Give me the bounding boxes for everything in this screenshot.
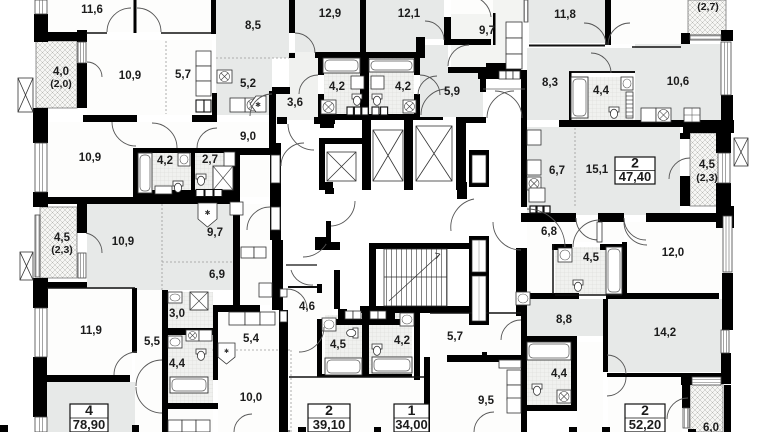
svg-text:4,4: 4,4	[551, 368, 568, 380]
svg-text:4,4: 4,4	[169, 358, 186, 370]
svg-text:10,9: 10,9	[79, 152, 101, 164]
svg-text:12,9: 12,9	[319, 8, 341, 20]
svg-text:9,0: 9,0	[240, 131, 256, 143]
svg-text:4,5: 4,5	[699, 159, 716, 171]
svg-text:47,40: 47,40	[619, 169, 652, 184]
svg-text:11,9: 11,9	[80, 325, 102, 337]
svg-text:2: 2	[641, 402, 649, 418]
svg-text:4,6: 4,6	[299, 301, 315, 313]
svg-text:39,10: 39,10	[313, 417, 346, 432]
svg-text:✱: ✱	[224, 348, 229, 355]
svg-text:5,9: 5,9	[444, 86, 460, 98]
svg-text:11,6: 11,6	[81, 4, 103, 16]
svg-text:4,2: 4,2	[329, 81, 345, 93]
svg-text:(2,3): (2,3)	[51, 244, 73, 256]
svg-text:(2,7): (2,7)	[697, 1, 719, 13]
svg-text:4,2: 4,2	[394, 335, 410, 347]
svg-text:✱: ✱	[205, 209, 211, 217]
svg-text:5,2: 5,2	[240, 78, 256, 90]
svg-text:(2,0): (2,0)	[50, 78, 72, 90]
svg-text:5,7: 5,7	[447, 331, 463, 343]
svg-text:12,1: 12,1	[398, 8, 421, 20]
svg-text:52,20: 52,20	[629, 417, 662, 432]
svg-text:5,4: 5,4	[243, 333, 260, 345]
svg-text:2: 2	[325, 402, 333, 418]
svg-text:12,0: 12,0	[662, 247, 684, 259]
svg-text:5,5: 5,5	[144, 336, 161, 348]
svg-text:9,5: 9,5	[478, 395, 495, 407]
svg-text:4: 4	[85, 402, 93, 418]
svg-text:10,9: 10,9	[112, 236, 134, 248]
svg-text:4,2: 4,2	[395, 81, 411, 93]
svg-text:5,7: 5,7	[175, 69, 191, 81]
svg-text:2,7: 2,7	[202, 154, 218, 166]
svg-text:4,5: 4,5	[583, 252, 600, 264]
svg-text:4,4: 4,4	[593, 85, 610, 97]
svg-text:6,9: 6,9	[209, 269, 225, 281]
svg-text:10,9: 10,9	[119, 70, 141, 82]
svg-text:78,90: 78,90	[73, 417, 106, 432]
svg-text:9,7: 9,7	[479, 25, 495, 37]
svg-text:✱: ✱	[255, 101, 261, 109]
svg-text:4,2: 4,2	[157, 155, 173, 167]
svg-text:34,00: 34,00	[395, 417, 428, 432]
svg-text:9,7: 9,7	[207, 227, 223, 239]
svg-text:11,8: 11,8	[554, 9, 576, 21]
svg-text:6,7: 6,7	[549, 165, 565, 177]
svg-text:6,8: 6,8	[541, 226, 558, 238]
svg-text:8,3: 8,3	[542, 77, 558, 89]
svg-text:14,2: 14,2	[654, 327, 676, 339]
svg-text:8,8: 8,8	[556, 314, 573, 326]
svg-text:10,6: 10,6	[667, 76, 689, 88]
svg-text:4,5: 4,5	[54, 232, 71, 244]
svg-text:3,6: 3,6	[287, 97, 303, 109]
svg-text:6,0: 6,0	[703, 422, 719, 432]
svg-text:(2,3): (2,3)	[696, 172, 718, 184]
svg-text:4,5: 4,5	[330, 339, 347, 351]
svg-text:8,5: 8,5	[245, 20, 262, 32]
svg-text:3,0: 3,0	[169, 308, 185, 320]
svg-text:1: 1	[408, 402, 416, 418]
svg-text:15,1: 15,1	[586, 164, 609, 176]
svg-text:4,0: 4,0	[53, 66, 69, 78]
svg-text:10,0: 10,0	[240, 392, 262, 404]
